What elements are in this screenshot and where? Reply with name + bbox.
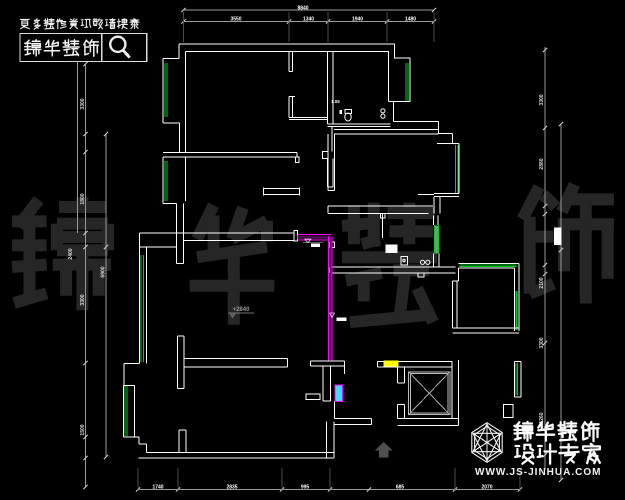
svg-text:2100: 2100 (539, 277, 545, 288)
svg-text:1480: 1480 (405, 16, 416, 22)
svg-text:2835: 2835 (226, 484, 237, 490)
svg-text:685: 685 (396, 484, 405, 490)
svg-text:WWW.JS-JINHUA.COM: WWW.JS-JINHUA.COM (475, 467, 601, 478)
svg-text:2070: 2070 (481, 484, 492, 490)
svg-text:3300: 3300 (539, 94, 545, 105)
svg-text:3300: 3300 (539, 337, 545, 348)
svg-text:1940: 1940 (352, 16, 363, 22)
svg-text:6900: 6900 (101, 266, 107, 277)
svg-text:1740: 1740 (152, 484, 163, 490)
svg-text:1340: 1340 (303, 16, 314, 22)
svg-text:3300: 3300 (80, 294, 86, 305)
svg-text:8840: 8840 (297, 6, 308, 12)
svg-text:995: 995 (301, 484, 310, 490)
svg-text:2400: 2400 (68, 248, 74, 259)
svg-text:1.05: 1.05 (331, 99, 340, 104)
svg-text:3550: 3550 (230, 16, 241, 22)
svg-text:+2840: +2840 (233, 307, 251, 313)
svg-text:1800: 1800 (80, 193, 86, 204)
svg-text:1500: 1500 (80, 424, 86, 435)
svg-text:2880: 2880 (539, 158, 545, 169)
svg-text:3300: 3300 (80, 98, 86, 109)
